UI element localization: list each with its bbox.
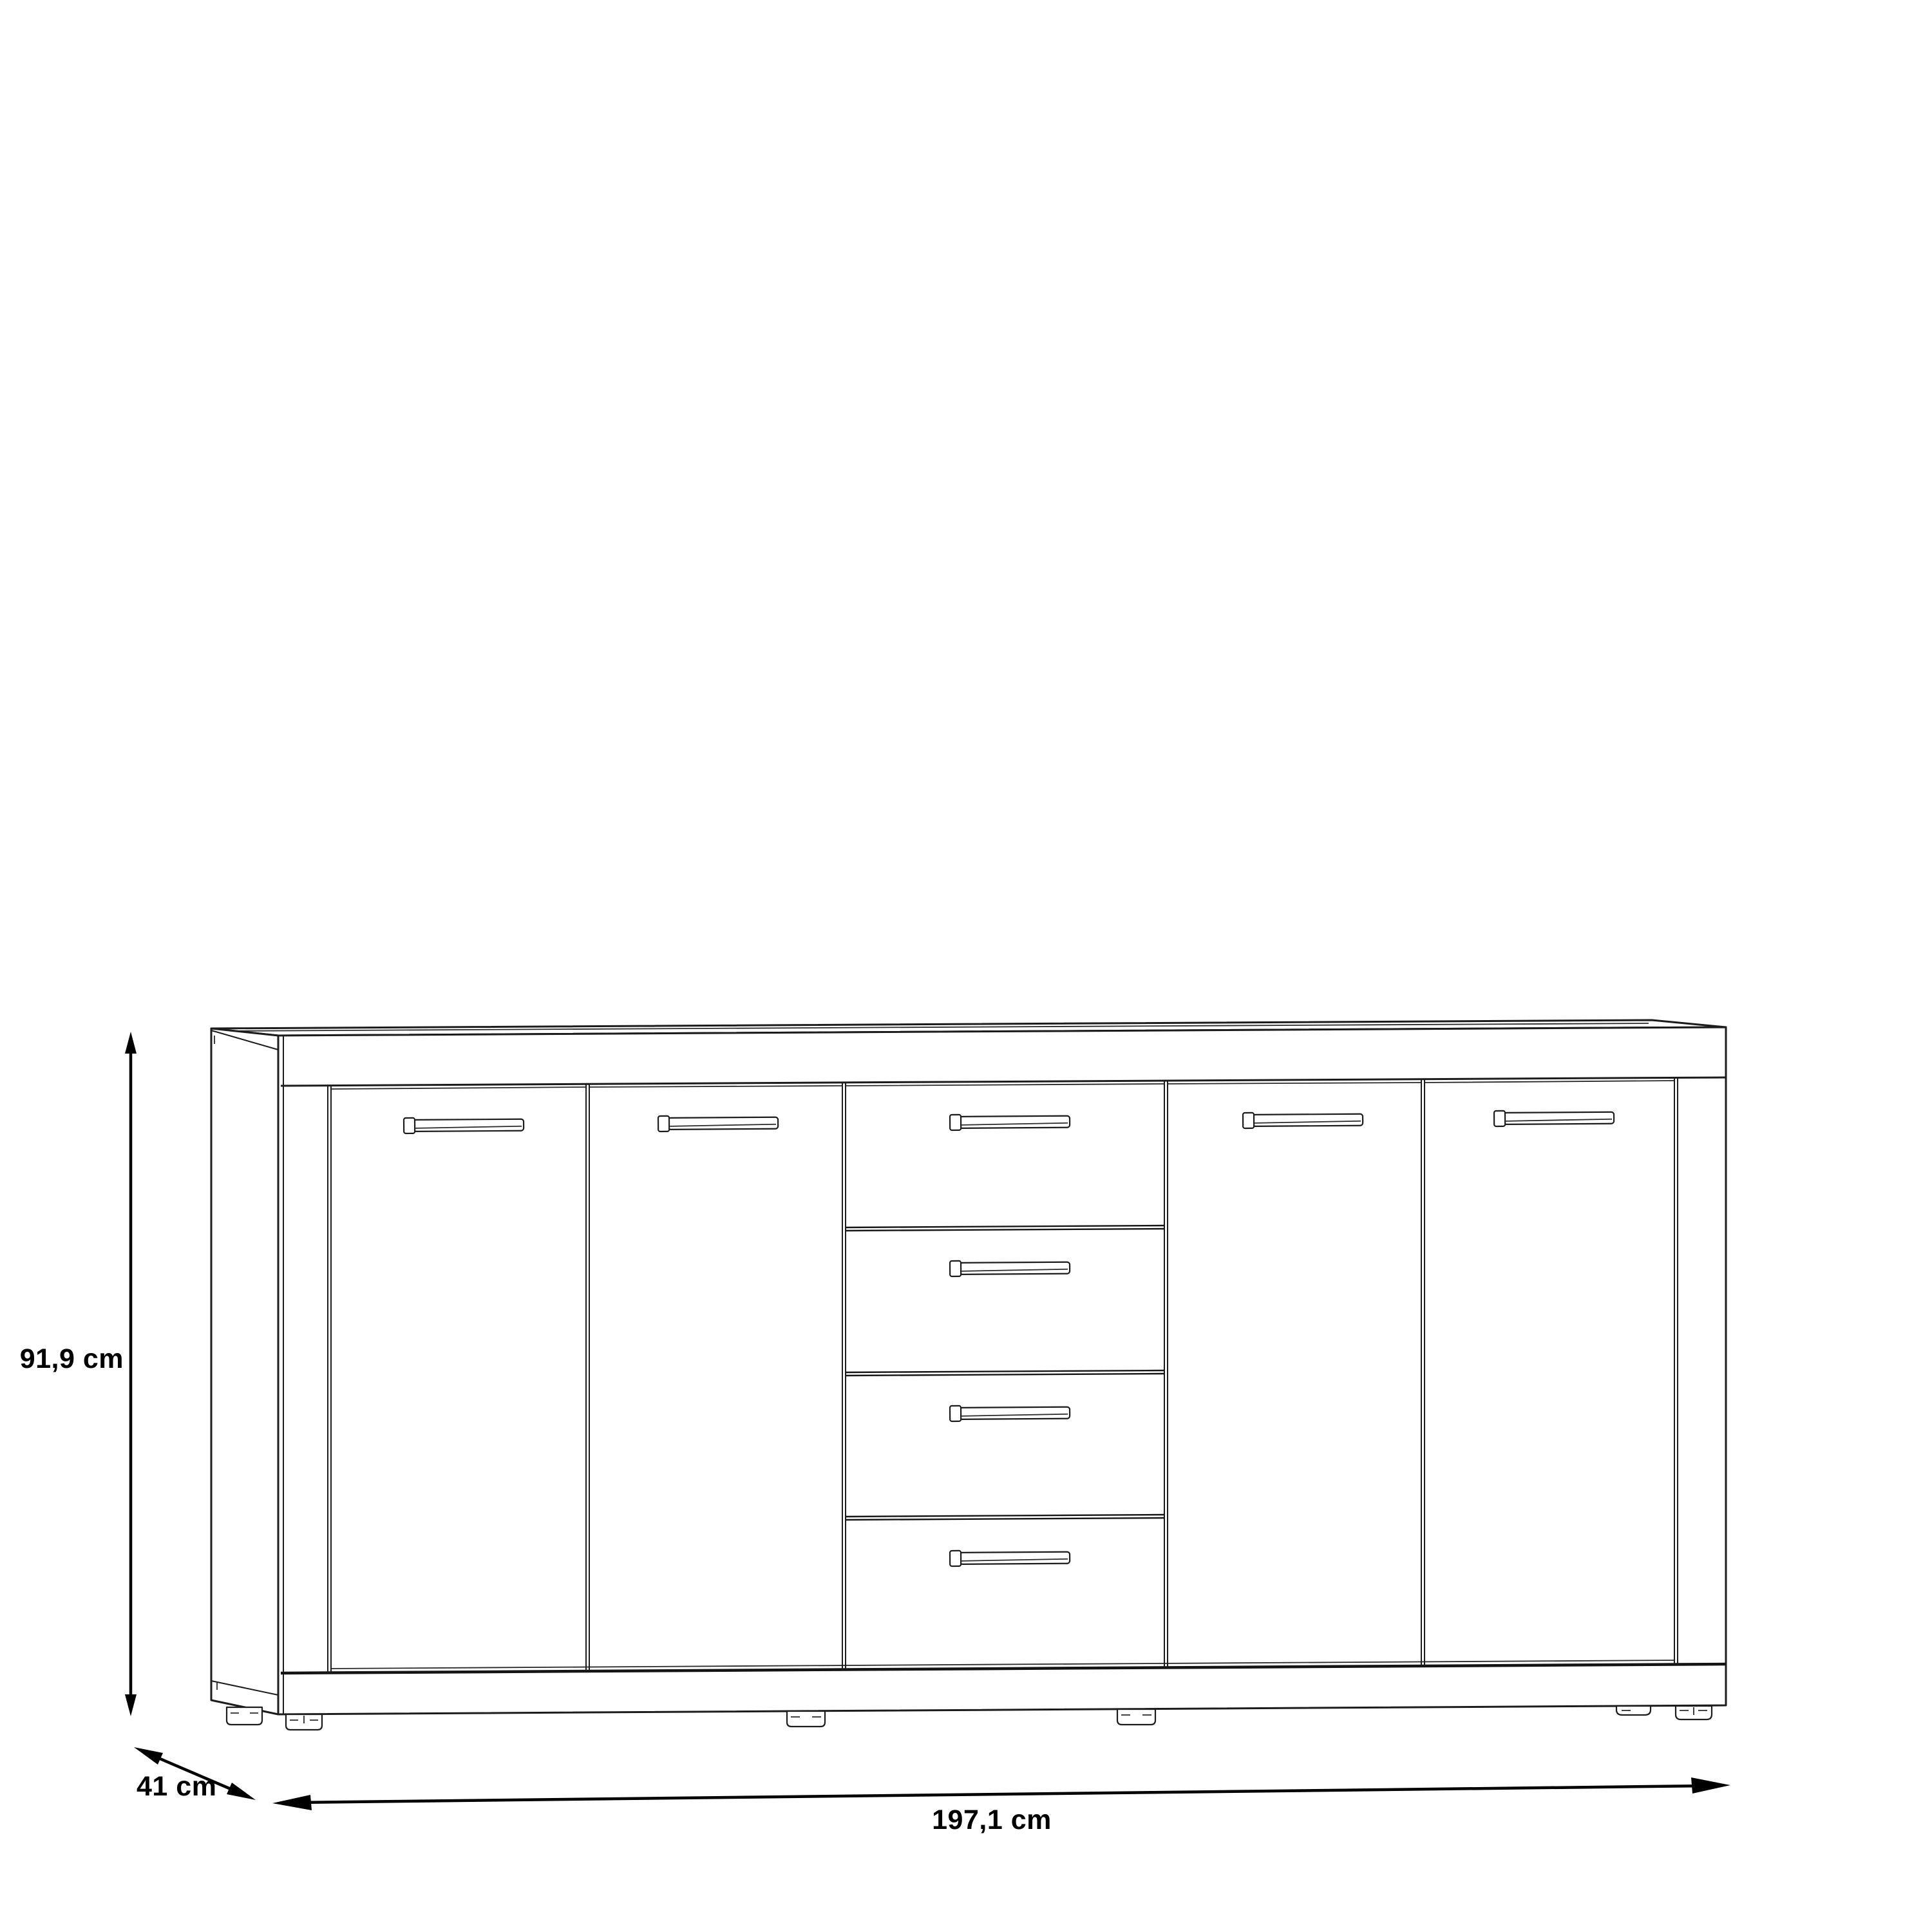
height-arrowhead-bottom	[125, 1694, 137, 1716]
cabinet-left-side-panel	[211, 1028, 278, 1714]
door-4-handle	[1494, 1110, 1614, 1126]
door-2-handle	[658, 1115, 778, 1132]
drawer-2-handle	[950, 1260, 1070, 1276]
foot-center-left	[787, 1711, 825, 1727]
depth-arrowhead-lower	[227, 1783, 256, 1800]
dimension-drawing-canvas: 91,9 cm 41 cm 197,1 cm	[0, 0, 1932, 1932]
cabinet-drawing	[211, 1020, 1726, 1730]
depth-arrowhead-upper	[134, 1747, 163, 1765]
drawer-3-handle	[950, 1405, 1070, 1421]
foot-side-left	[227, 1707, 262, 1725]
dimension-depth: 41 cm	[134, 1747, 256, 1802]
door-3-handle	[1243, 1112, 1363, 1128]
depth-dimension-label: 41 cm	[137, 1771, 216, 1802]
drawer-1-handle	[950, 1114, 1070, 1130]
foot-center-right	[1117, 1709, 1155, 1725]
sideboard-dimension-diagram: 91,9 cm 41 cm 197,1 cm	[0, 0, 1932, 1932]
foot-front-left	[286, 1714, 322, 1730]
width-dimension-label: 197,1 cm	[932, 1804, 1052, 1835]
drawer-4-handle	[950, 1550, 1070, 1566]
foot-rear-right	[1616, 1706, 1651, 1715]
height-arrowhead-top	[125, 1032, 137, 1054]
width-arrowhead-right	[1691, 1777, 1730, 1794]
dimension-height: 91,9 cm	[20, 1032, 137, 1716]
door-1-handle	[404, 1117, 524, 1133]
dimension-width: 197,1 cm	[272, 1777, 1730, 1835]
height-dimension-label: 91,9 cm	[20, 1343, 124, 1374]
foot-front-right	[1676, 1706, 1712, 1719]
width-arrowhead-left	[272, 1795, 312, 1810]
